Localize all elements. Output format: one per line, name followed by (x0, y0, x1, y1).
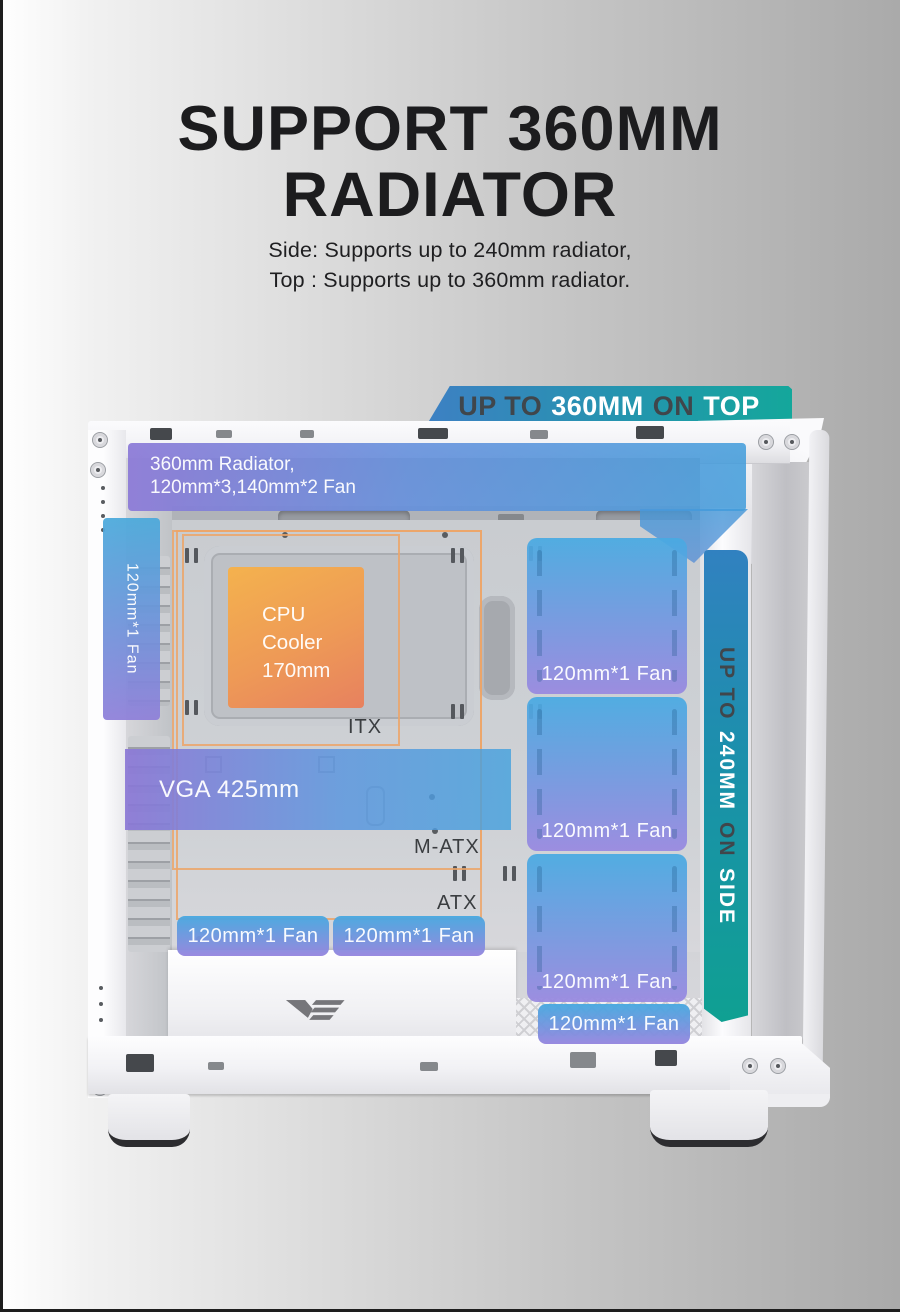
side-banner-word: ON (714, 822, 738, 858)
top-banner-word: 360MM (551, 391, 644, 422)
top-clip (150, 428, 172, 440)
atx-label: ATX (437, 892, 477, 915)
side-fan-overlay-3: 120mm*1 Fan (527, 854, 687, 1002)
page-background: SUPPORT 360MM RADIATOR Side: Supports up… (0, 0, 900, 1312)
frame-hole (101, 486, 105, 490)
case-bottom-base (88, 1036, 802, 1094)
top-clip (530, 430, 548, 439)
screw-ring (758, 434, 774, 450)
itx-label: ITX (348, 716, 382, 739)
top-clip (636, 426, 664, 439)
top-clip (418, 428, 448, 439)
fan-label: 120mm*1 Fan (343, 925, 474, 948)
top-radiator-text-line2: 120mm*3,140mm*2 Fan (150, 476, 746, 499)
frame-hole (99, 1018, 103, 1022)
side-banner-word: SIDE (714, 868, 738, 925)
fan-label: 120mm*1 Fan (187, 925, 318, 948)
cpu-cooler-overlay: CPU Cooler 170mm (228, 567, 364, 708)
base-clip (208, 1062, 224, 1070)
top-clip (300, 430, 314, 438)
screw-ring (742, 1058, 758, 1074)
top-clip (216, 430, 232, 438)
page-subtitle-line1: Side: Supports up to 240mm radiator, (0, 238, 900, 263)
cable-grommet (479, 596, 515, 700)
bottom-fan-overlay-1: 120mm*1 Fan (177, 916, 329, 956)
side-fan-overlay-1: 120mm*1 Fan (527, 538, 687, 694)
frame-hole (99, 986, 103, 990)
frame-hole (101, 500, 105, 504)
screw-ring (90, 462, 106, 478)
top-banner: UP TO 360MM ON TOP (426, 386, 792, 426)
base-clip (655, 1050, 677, 1066)
matx-label: M-ATX (414, 836, 480, 859)
case-foot-right (650, 1090, 768, 1147)
side-banner-word: UP TO (714, 647, 738, 720)
base-clip (570, 1052, 596, 1068)
base-clip (126, 1054, 154, 1072)
screw-ring (92, 432, 108, 448)
darkflash-logo (282, 993, 350, 1029)
page-title: SUPPORT 360MM RADIATOR (0, 96, 900, 228)
left-fan-overlay: 120mm*1 Fan (103, 518, 160, 720)
left-edge-line (0, 0, 3, 1312)
side-fan-overlay-2: 120mm*1 Fan (527, 697, 687, 851)
page-title-line1: SUPPORT 360MM (0, 96, 900, 162)
left-fan-label: 120mm*1 Fan (123, 563, 141, 675)
screw-ring (784, 434, 800, 450)
vga-overlay: VGA 425mm (125, 749, 511, 830)
side-banner-word: 240MM (714, 731, 738, 811)
case-foot-left (108, 1094, 190, 1147)
top-radiator-overlay: 360mm Radiator, 120mm*3,140mm*2 Fan (128, 443, 746, 511)
top-banner-word: TOP (703, 391, 760, 422)
fan-label: 120mm*1 Fan (527, 820, 687, 843)
fan-label: 120mm*1 Fan (527, 971, 687, 994)
standoff (502, 866, 518, 881)
top-banner-word: UP TO (458, 391, 542, 422)
base-clip (420, 1062, 438, 1071)
frame-hole (99, 1002, 103, 1006)
page-title-line2: RADIATOR (0, 162, 900, 228)
top-radiator-text-line1: 360mm Radiator, (150, 453, 746, 476)
fan-label: 120mm*1 Fan (527, 663, 687, 686)
screw-ring (770, 1058, 786, 1074)
page-subtitle-line2: Top : Supports up to 360mm radiator. (0, 268, 900, 293)
top-banner-word: ON (653, 391, 695, 422)
side-banner: UP TO 240MM ON SIDE (704, 550, 748, 1022)
bottom-right-fan-overlay: 120mm*1 Fan (538, 1004, 690, 1044)
vga-label: VGA 425mm (159, 776, 300, 804)
cpu-cooler-label: CPU Cooler 170mm (262, 601, 342, 685)
fan-label: 120mm*1 Fan (548, 1013, 679, 1036)
bottom-fan-overlay-2: 120mm*1 Fan (333, 916, 485, 956)
